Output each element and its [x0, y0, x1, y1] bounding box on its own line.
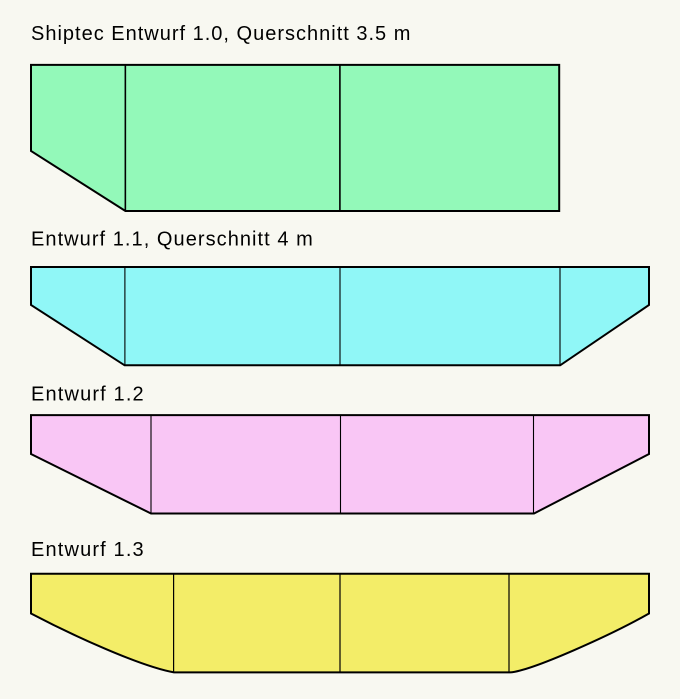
svg-text:Entwurf 1.1, Querschnitt 4 m: Entwurf 1.1, Querschnitt 4 m: [31, 228, 314, 250]
svg-text:Shiptec Entwurf 1.0, Querschni: Shiptec Entwurf 1.0, Querschnitt 3.5 m: [31, 23, 411, 45]
svg-text:Entwurf 1.2: Entwurf 1.2: [31, 383, 145, 405]
svg-text:Entwurf 1.3: Entwurf 1.3: [31, 539, 145, 561]
